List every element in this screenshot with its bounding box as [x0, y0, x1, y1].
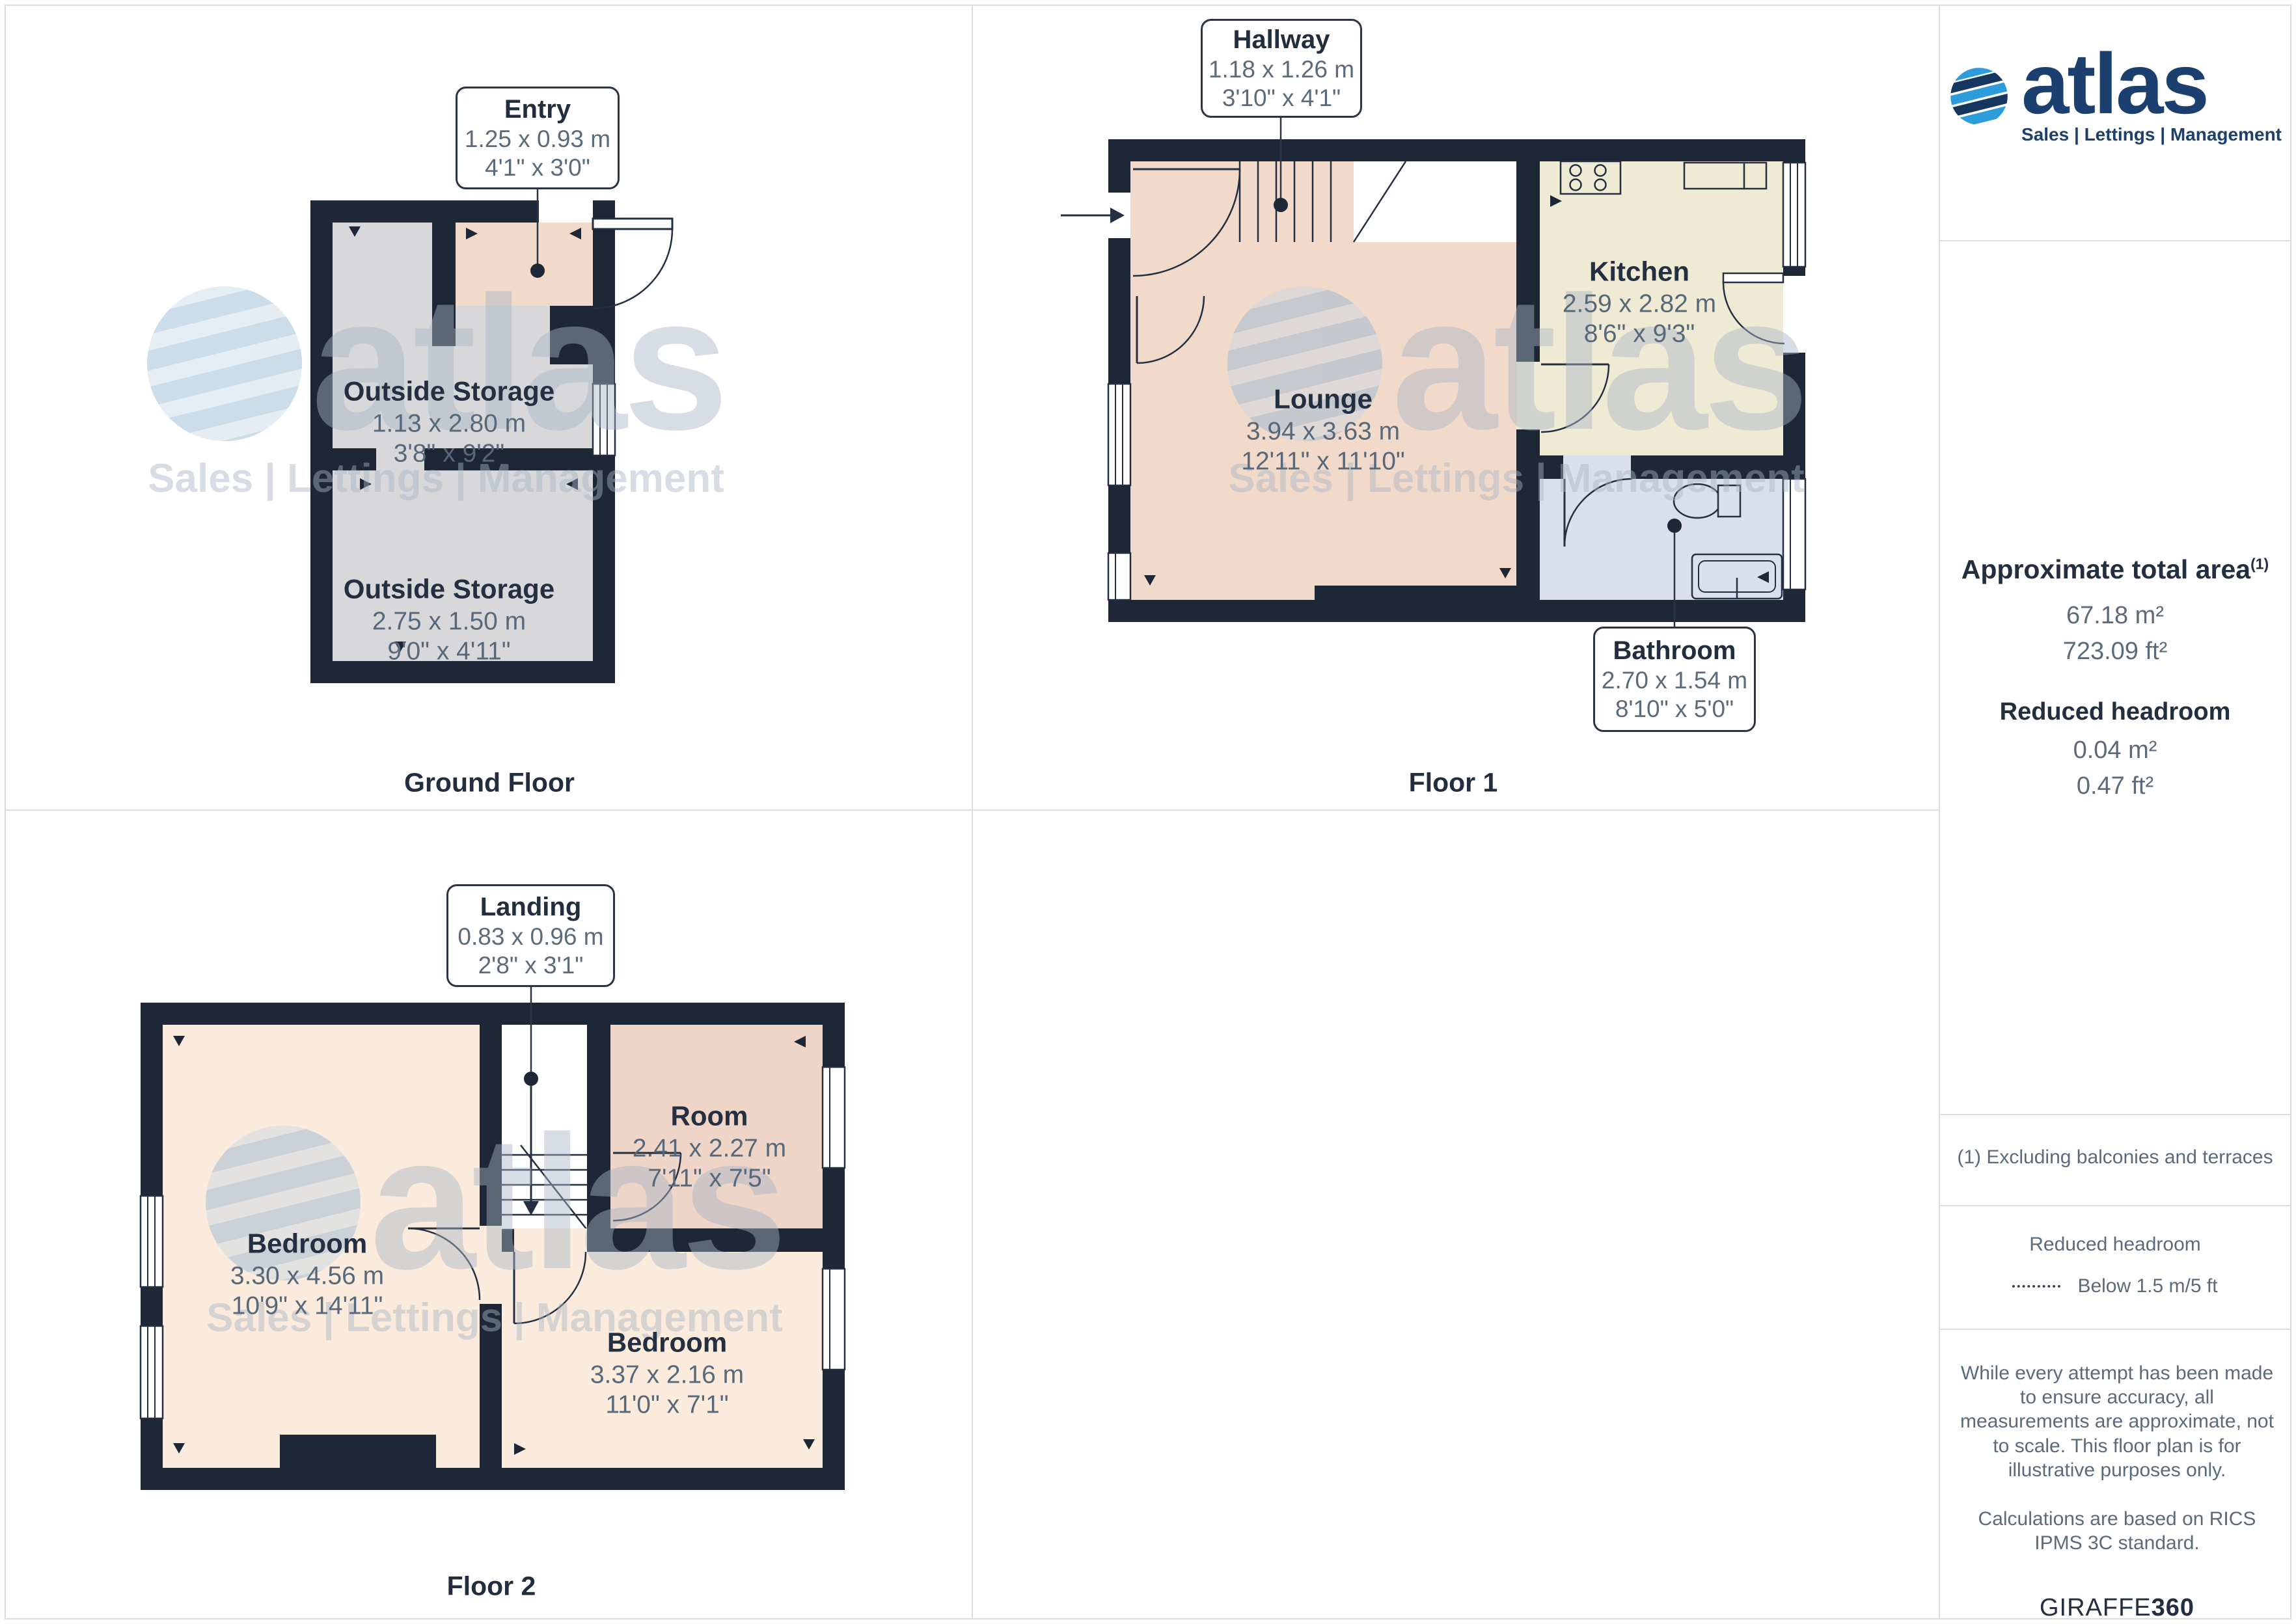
room-size-metric: 3.30 x 4.56 m	[230, 1261, 384, 1291]
reduced-headroom-legend: Reduced headroom Below 1.5 m/5 ft	[1939, 1234, 2291, 1297]
room-name: Outside Storage	[344, 375, 554, 409]
logo-tagline: Sales | Lettings | Management	[2021, 124, 2282, 145]
room-size-imperial: 8'10" x 5'0"	[1598, 695, 1751, 724]
reduced-ft2: 0.47 ft²	[1939, 772, 2291, 800]
approx-area-title: Approximate total area(1)	[1939, 554, 2291, 585]
room-size-metric: 3.37 x 2.16 m	[590, 1360, 744, 1390]
footnote-marker: (1)	[2250, 555, 2269, 572]
disclaimer: While every attempt has been made to ens…	[1956, 1361, 2278, 1623]
room-size-metric: 3.94 x 3.63 m	[1241, 416, 1404, 446]
room-size-metric: 2.41 x 2.27 m	[633, 1133, 786, 1163]
giraffe360-logo: GIRAFFE360	[1956, 1593, 2278, 1623]
callout-landing: Landing 0.83 x 0.96 m 2'8" x 3'1"	[446, 884, 615, 987]
dotted-line-icon	[2012, 1285, 2060, 1288]
room-size-imperial: 11'0" x 7'1"	[590, 1390, 744, 1420]
atlas-logo: atlas Sales | Lettings | Management	[1950, 47, 2282, 146]
callout-entry: Entry 1.25 x 0.93 m 4'1" x 3'0"	[456, 87, 620, 189]
room-size-metric: 1.25 x 0.93 m	[460, 125, 615, 154]
callout-bathroom: Bathroom 2.70 x 1.54 m 8'10" x 5'0"	[1593, 627, 1756, 732]
footnote-excluding-balconies: (1) Excluding balconies and terraces	[1939, 1146, 2291, 1169]
room-size-imperial: 7'11" x 7'5"	[633, 1163, 786, 1193]
room-size-imperial: 4'1" x 3'0"	[460, 154, 615, 182]
room-size-imperial: 12'11" x 11'10"	[1241, 446, 1404, 476]
label-bedroom-2: Bedroom 3.37 x 2.16 m 11'0" x 7'1"	[590, 1326, 744, 1420]
label-outside-storage-1: Outside Storage 1.13 x 2.80 m 3'8" x 9'2…	[344, 375, 554, 469]
reduced-headroom-title: Reduced headroom	[1939, 698, 2291, 726]
callout-hallway: Hallway 1.18 x 1.26 m 3'10" x 4'1"	[1201, 19, 1362, 118]
room-size-imperial: 3'8" x 9'2"	[344, 439, 554, 468]
standard-text: Calculations are based on RICS IPMS 3C s…	[1956, 1507, 2278, 1555]
logo-brand: atlas	[2021, 47, 2282, 120]
room-size-imperial: 10'9" x 14'11"	[230, 1291, 384, 1321]
reduced-m2: 0.04 m²	[1939, 737, 2291, 765]
area-m2: 67.18 m²	[1939, 602, 2291, 630]
caption-floor-1: Floor 1	[1409, 768, 1498, 798]
room-size-imperial: 8'6" x 9'3"	[1563, 319, 1716, 349]
room-size-imperial: 2'8" x 3'1"	[451, 951, 610, 980]
room-size-metric: 0.83 x 0.96 m	[451, 923, 610, 951]
label-bedroom-1: Bedroom 3.30 x 4.56 m 10'9" x 14'11"	[230, 1227, 384, 1321]
caption-floor-2: Floor 2	[447, 1571, 536, 1602]
disclaimer-text: While every attempt has been made to ens…	[1956, 1361, 2278, 1482]
area-ft2: 723.09 ft²	[1939, 638, 2291, 666]
area-summary: Approximate total area(1) 67.18 m² 723.0…	[1939, 554, 2291, 800]
room-size-metric: 2.75 x 1.50 m	[344, 606, 554, 636]
room-size-metric: 2.70 x 1.54 m	[1598, 666, 1751, 695]
room-size-metric: 2.59 x 2.82 m	[1563, 289, 1716, 319]
room-size-metric: 1.18 x 1.26 m	[1205, 55, 1358, 84]
room-size-metric: 1.13 x 2.80 m	[344, 409, 554, 439]
label-kitchen: Kitchen 2.59 x 2.82 m 8'6" x 9'3"	[1563, 255, 1716, 349]
label-room: Room 2.41 x 2.27 m 7'11" x 7'5"	[633, 1100, 786, 1194]
label-outside-storage-2: Outside Storage 2.75 x 1.50 m 9'0" x 4'1…	[344, 573, 554, 667]
label-lounge: Lounge 3.94 x 3.63 m 12'11" x 11'10"	[1241, 383, 1404, 477]
floor1-plan	[1061, 117, 1805, 627]
room-name: Bedroom	[590, 1326, 744, 1360]
legend-title: Reduced headroom	[1939, 1234, 2291, 1256]
room-name: Outside Storage	[344, 573, 554, 607]
caption-ground-floor: Ground Floor	[404, 768, 575, 798]
room-size-imperial: 9'0" x 4'11"	[344, 636, 554, 666]
floorplan-drawing	[0, 0, 2296, 1624]
room-name: Entry	[460, 94, 615, 125]
room-name: Room	[633, 1100, 786, 1134]
room-name: Hallway	[1205, 24, 1358, 55]
room-name: Bedroom	[230, 1227, 384, 1262]
atlas-globe-icon	[1950, 47, 2008, 146]
legend-label: Below 1.5 m/5 ft	[2077, 1275, 2217, 1297]
room-name: Bathroom	[1598, 635, 1751, 666]
room-name: Lounge	[1241, 383, 1404, 417]
room-name: Landing	[451, 891, 610, 923]
floorplan-page: atlas Sales | Lettings | Management atla…	[0, 0, 2296, 1624]
room-name: Kitchen	[1563, 255, 1716, 290]
room-size-imperial: 3'10" x 4'1"	[1205, 84, 1358, 113]
